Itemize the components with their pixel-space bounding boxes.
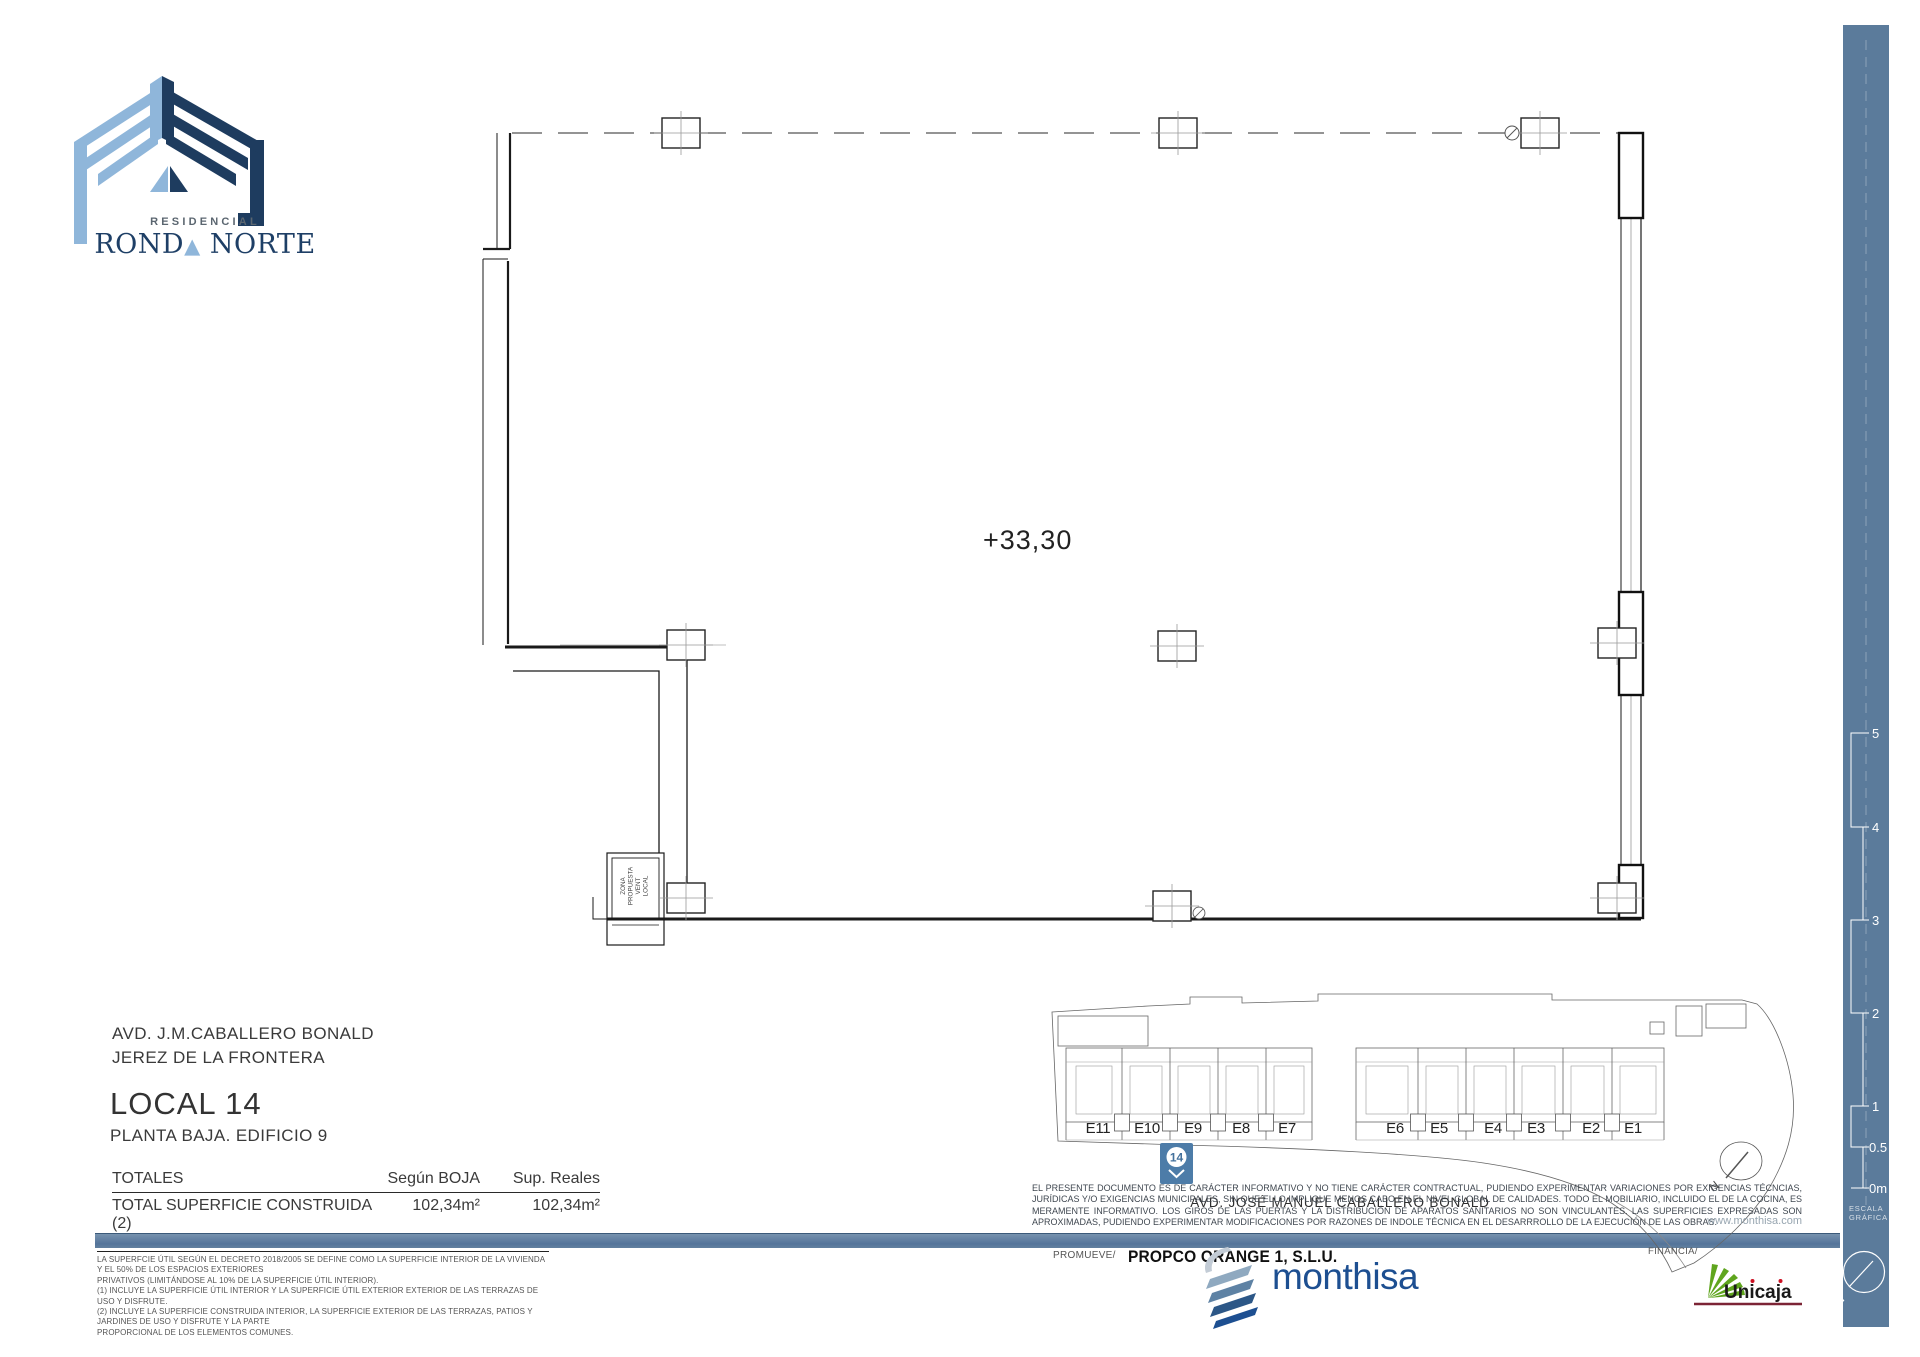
footnote-line4: (2) INCLUYE LA SUPERFICIE CONSTRUIDA INT… [97,1307,549,1328]
scale-caption-line1: ESCALA [1849,1204,1883,1213]
selected-unit-marker: 14 [1160,1143,1193,1184]
unicaja-logo: Unicaja [1690,1246,1808,1312]
scale-label-1: 1 [1872,1099,1879,1114]
scale-label-2: 2 [1872,1006,1879,1021]
scale-label-0m: 0m [1869,1181,1887,1196]
scale-label-05: 0.5 [1869,1140,1887,1155]
totals-title: TOTALES [112,1170,372,1188]
footnote-line5: PROPORCIONAL DE LOS ELEMENTOS COMUNES. [97,1328,549,1338]
project-address: AVD. J.M.CABALLERO BONALD JEREZ DE LA FR… [112,1022,374,1070]
site-unit-label-e3: E3 [1527,1120,1545,1137]
vent-room-label-line2: PROPUESTA [628,866,635,905]
footnote-line1: LA SUPERFCIE ÚTIL SEGÚN EL DECRETO 2018/… [97,1255,549,1276]
surface-footnotes: LA SUPERFCIE ÚTIL SEGÚN EL DECRETO 2018/… [97,1251,549,1338]
vent-room: ZONA PROPUESTA VENT LOCAL [607,853,664,945]
floor-level-label: +33,30 [983,525,1072,556]
totals-row-label: TOTAL SUPERFICIE CONSTRUIDA (2) [112,1197,372,1233]
site-unit-label-e10: E10 [1134,1120,1160,1137]
totals-value-boja: 102,34m² [380,1197,480,1233]
logo-residencial-text: RESIDENCIAL [100,216,310,228]
graphic-scale: 5 4 3 2 1 0.5 0m ESCALA GRÁFICA N [1830,40,1888,1308]
totals-table: TOTALES Según BOJA Sup. Reales TOTAL SUP… [112,1170,600,1233]
address-line2: JEREZ DE LA FRONTERA [112,1046,374,1070]
site-unit-label-e11: E11 [1086,1120,1111,1137]
totals-col-boja: Según BOJA [380,1170,480,1188]
totals-value-reales: 102,34m² [488,1197,600,1233]
logo-triangle-icon: ▲ [184,234,201,258]
site-unit-label-e6: E6 [1386,1120,1404,1137]
totals-data-row: TOTAL SUPERFICIE CONSTRUIDA (2) 102,34m²… [112,1193,600,1233]
drawing-layer: ZONA PROPUESTA VENT LOCAL [0,0,1920,1357]
vent-room-label-line4: LOCAL [643,875,650,896]
totals-col-reales: Sup. Reales [488,1170,600,1188]
bar-north-compass: N [1830,1252,1884,1309]
site-plan: E11 E10 E9 E8 E7 E6 E5 E4 E3 E2 E1 14 AV… [1052,994,1794,1272]
unit-title: LOCAL 14 [110,1086,262,1122]
logo-right-building [162,76,264,226]
scale-label-3: 3 [1872,913,1879,928]
site-unit-label-e1: E1 [1624,1120,1642,1137]
site-unit-label-e8: E8 [1232,1120,1250,1137]
scale-caption-line2: GRÁFICA [1849,1213,1888,1222]
right-glazing [1621,218,1641,865]
unicaja-i-dot [1751,1279,1755,1283]
logo-name-part1: ROND [94,229,184,260]
monthisa-logo-wordmark: monthisa [1272,1256,1418,1298]
selected-unit-number: 14 [1170,1151,1184,1165]
plan-sheet: ZONA PROPUESTA VENT LOCAL [0,0,1920,1357]
logo-brand-name: ROND▲ NORTE [88,229,322,260]
drain-symbols [1193,126,1519,919]
site-unit-label-e2: E2 [1582,1120,1600,1137]
site-unit-label-e9: E9 [1184,1120,1202,1137]
footnote-line3: (1) INCLUYE LA SUPERFICIE ÚTIL INTERIOR … [97,1286,549,1307]
monthisa-logo-icon [1198,1245,1268,1330]
unicaja-j-dot [1779,1279,1783,1283]
scale-label-4: 4 [1872,820,1879,835]
logo-name-part2: NORTE [201,229,316,260]
bar-north-label: N [1830,1291,1847,1309]
unit-subtitle: PLANTA BAJA. EDIFICIO 9 [110,1126,328,1146]
address-line1: AVD. J.M.CABALLERO BONALD [112,1022,374,1046]
vent-room-label-line1: ZONA [620,876,627,894]
site-unit-label-e4: E4 [1484,1120,1502,1137]
promoter-label: PROMUEVE/ [1053,1250,1116,1261]
vent-room-label-line3: VENT [635,877,642,894]
site-unit-label-e7: E7 [1278,1120,1296,1137]
structural-columns [654,111,1644,928]
scale-label-5: 5 [1872,726,1879,741]
unicaja-wordmark: Unicaja [1724,1282,1792,1303]
totals-header-row: TOTALES Según BOJA Sup. Reales [112,1170,600,1193]
website-url: www.monthisa.com [1032,1215,1802,1227]
site-unit-label-e5: E5 [1430,1120,1448,1137]
footnote-line2: PRIVATIVOS (LIMITÁNDOSE AL 10% DE LA SUP… [97,1276,549,1286]
